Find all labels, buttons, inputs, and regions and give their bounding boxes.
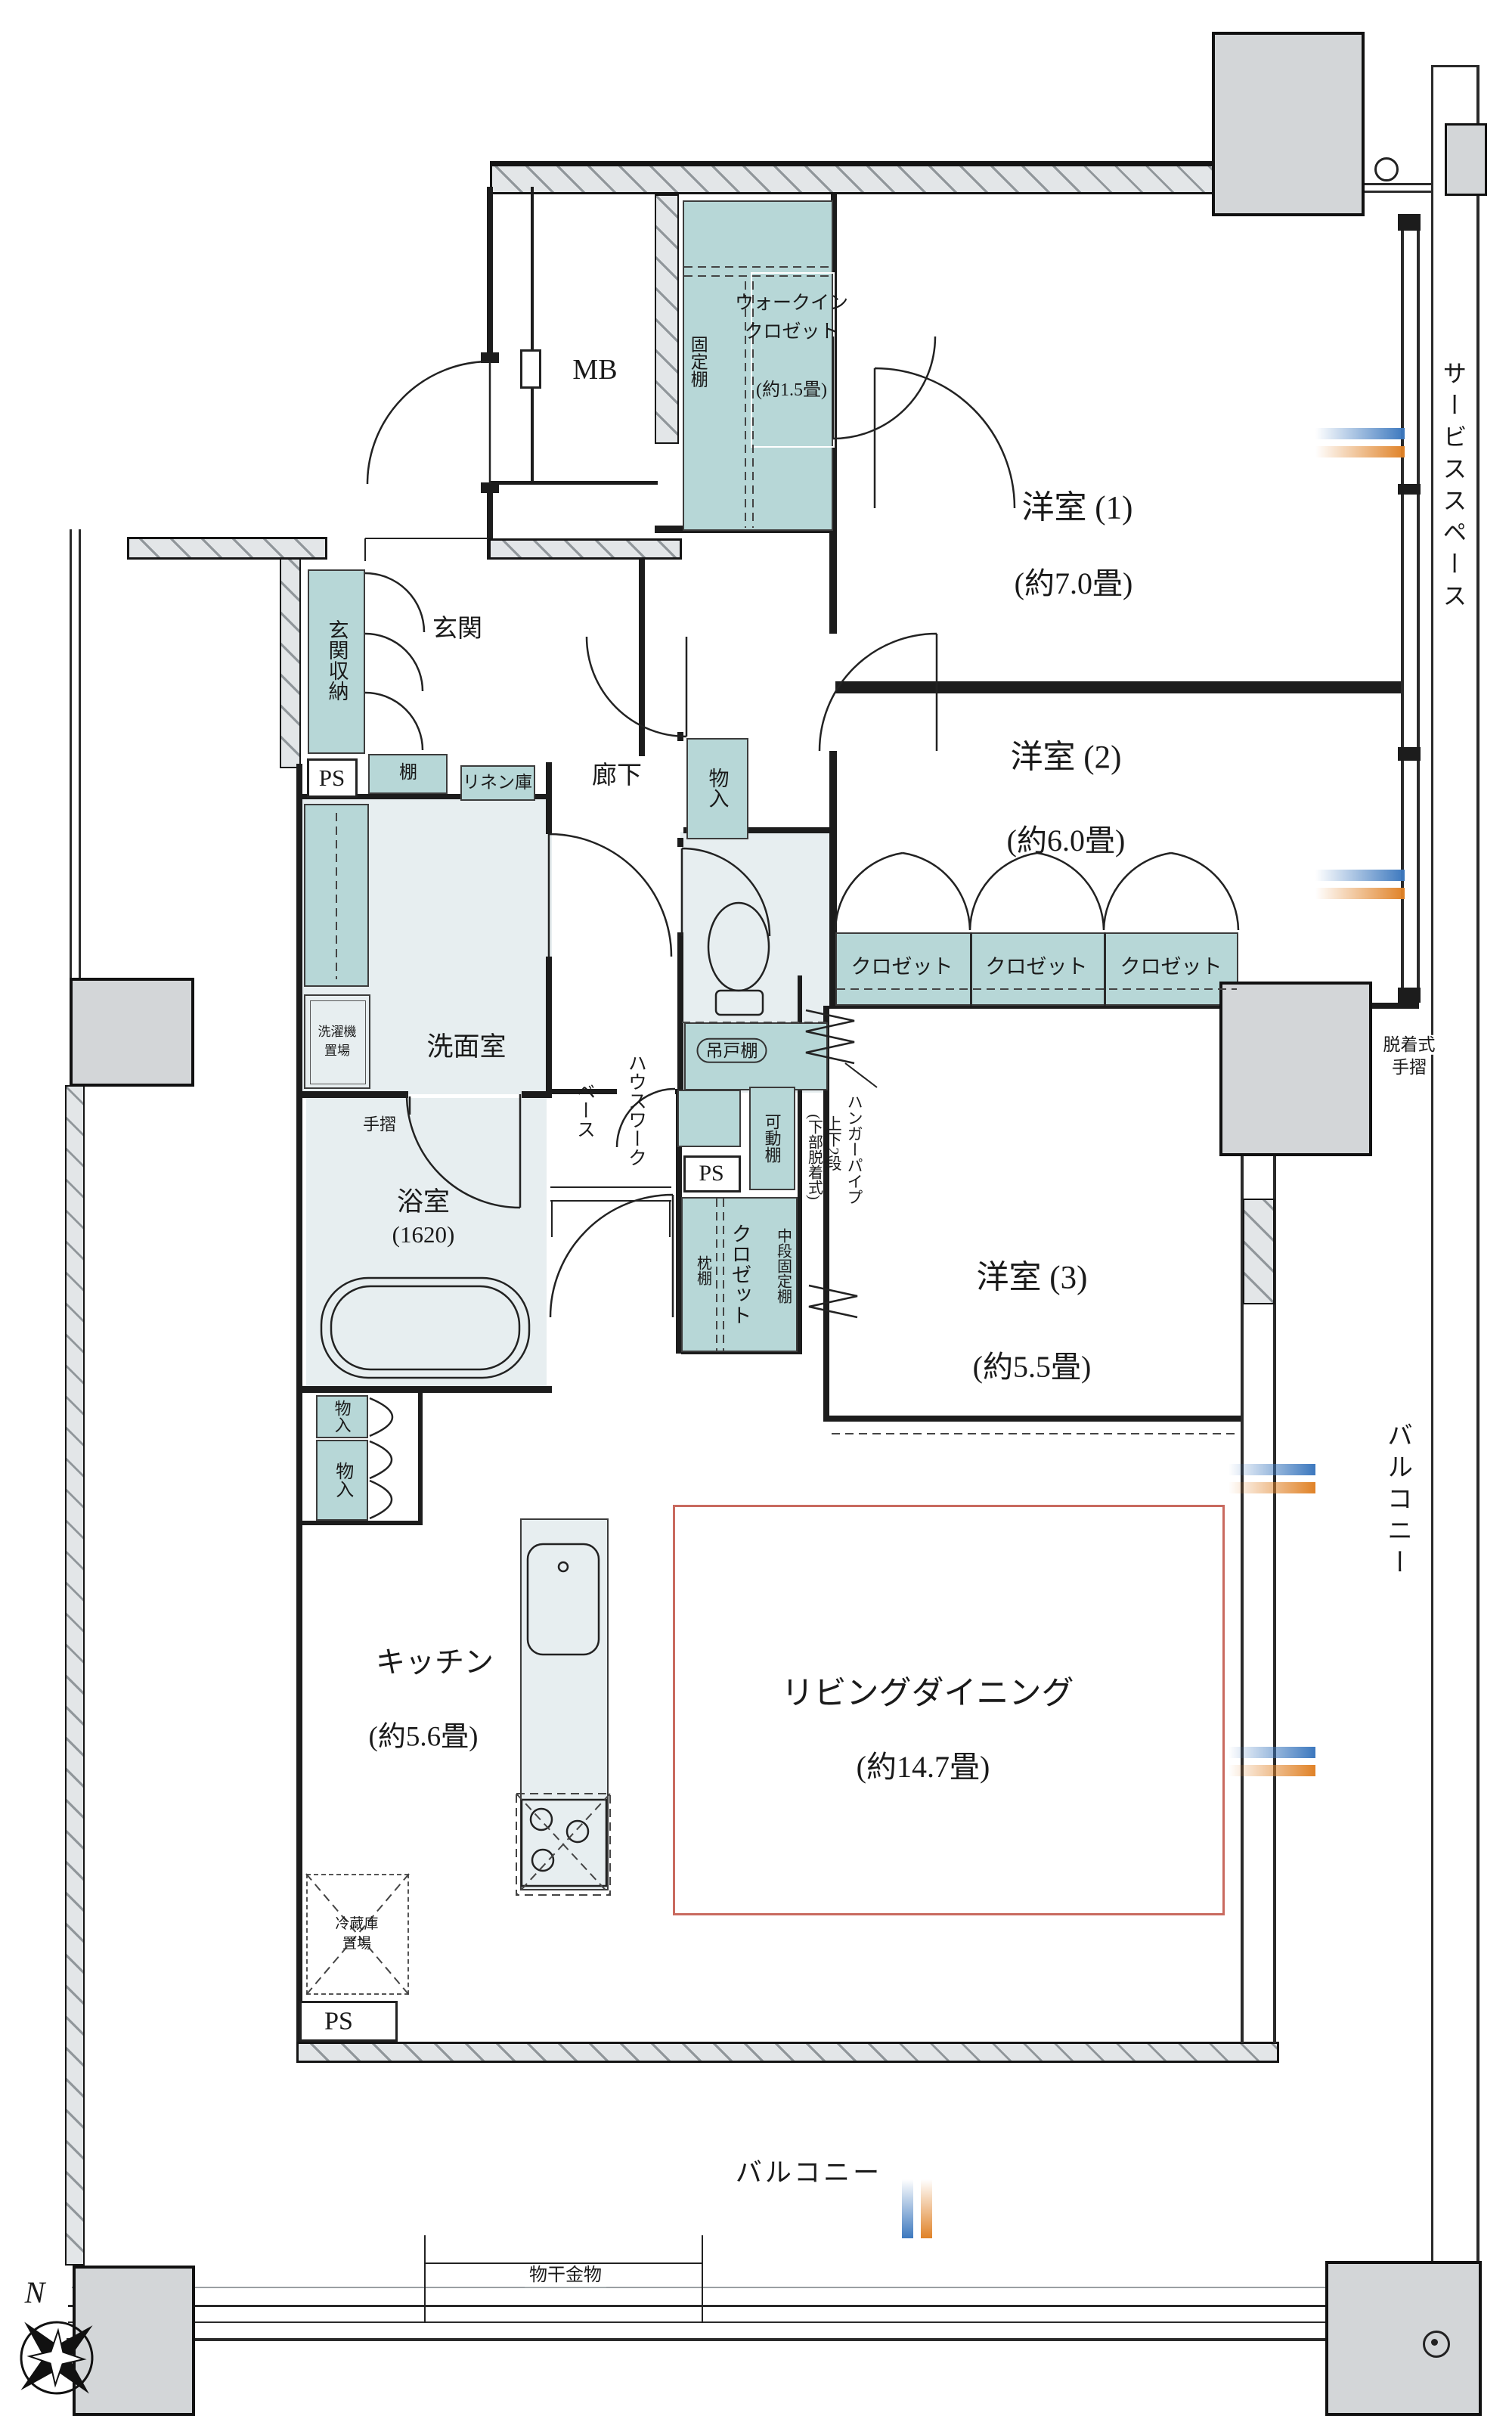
left-site-wall xyxy=(65,1085,85,2266)
desk-lines xyxy=(550,1187,671,1237)
entry-door-cap-2 xyxy=(481,482,499,493)
west-outer-wall xyxy=(296,764,302,2046)
entry-wall-upper xyxy=(487,187,493,361)
window-mark-orange-5 xyxy=(921,2179,932,2238)
north-wall xyxy=(490,161,1216,194)
fridge-space-box xyxy=(306,1874,409,1995)
tana-label: 棚 xyxy=(399,763,417,784)
ps-mid-label: PS xyxy=(699,1161,723,1187)
hall-monoiri-door-arc xyxy=(587,637,686,737)
window-mark-orange-4 xyxy=(1228,1765,1315,1776)
entry-north-wall-a xyxy=(127,537,327,560)
genkan-shuno-door-arcs xyxy=(365,573,424,750)
service-rail-cap xyxy=(1431,65,1479,67)
hanger-pipe-zigzag-2 xyxy=(809,1286,857,1317)
pillar-top-right xyxy=(1212,32,1365,216)
window-mark-blue-1 xyxy=(1315,428,1405,439)
hall-monoiri-label: 物入 xyxy=(705,768,728,808)
rouka-label: 廊下 xyxy=(592,762,642,791)
vent-circle-top xyxy=(1374,157,1399,181)
closet-bifold-arcs xyxy=(835,853,1238,930)
west1-size: (約7.0畳) xyxy=(1015,566,1133,601)
approach-line-1 xyxy=(70,529,72,979)
nook-teal-box xyxy=(677,1090,741,1147)
closet-label-2: クロゼット xyxy=(986,955,1088,978)
window-mark-blue-4 xyxy=(1228,1747,1315,1758)
bath-size-label: (1620) xyxy=(392,1221,455,1248)
west1-name: 洋室 (1) xyxy=(1022,489,1133,526)
east-window-wall-1 xyxy=(1401,214,1404,1003)
balcony-bottom-label: バルコニー xyxy=(736,2158,882,2188)
hanger-label-2: 上下2段 xyxy=(824,1115,842,1171)
east-wall-nib-2 xyxy=(1398,484,1421,495)
w3-south-wall xyxy=(829,1416,1241,1422)
monoiri-label-1: 物入 xyxy=(332,1400,351,1433)
genkan-hall-wall xyxy=(639,560,645,756)
bath-label: 浴室 xyxy=(397,1187,450,1217)
ld-label: リビングダイニング xyxy=(782,1675,1074,1712)
east-wall-nib-1 xyxy=(1398,214,1421,231)
entry-north-wall-b xyxy=(488,538,682,560)
floor-plan: MB 固定棚 ウォークイン クロゼット (約1.5畳) 洋室 (1) (約7.0… xyxy=(0,0,1512,2416)
closet-label-1: クロゼット xyxy=(851,955,953,978)
balcony-east-wall-2 xyxy=(1273,1006,1276,2043)
monoiri-door-bulges xyxy=(370,1398,392,1518)
kitchen-counter xyxy=(520,1518,609,1890)
east-wall-nib-3 xyxy=(1398,747,1421,761)
housework-label-2: ベース xyxy=(573,1082,595,1139)
west2-name: 洋室 (2) xyxy=(1011,739,1122,776)
balcony-east-wall-1 xyxy=(1241,1006,1244,2043)
toilet-west-wall xyxy=(677,932,683,1094)
toilet-west-wall-nib1 xyxy=(677,732,683,741)
dacchaku-label-2: 手摺 xyxy=(1392,1058,1427,1078)
front-door-arc xyxy=(367,361,490,484)
pillar-bottom-right xyxy=(1325,2261,1482,2416)
service-rail-box xyxy=(1445,123,1487,196)
wic-shelf-label: 固定棚 xyxy=(687,336,707,388)
washroom-label: 洗面室 xyxy=(426,1032,506,1062)
closet-v-label: クロゼット xyxy=(727,1224,751,1326)
balcony-right-label: バルコニー xyxy=(1382,1422,1411,1580)
west-outer-wall-upper xyxy=(280,558,301,768)
toilet-west-wall-nib2 xyxy=(677,838,683,847)
hall-west-wall-a xyxy=(546,762,552,834)
linen-label: リネン庫 xyxy=(463,773,532,792)
monoiri-south-wall xyxy=(301,1521,423,1525)
balcony-rail-line-2 xyxy=(68,2305,1478,2307)
balcony-rail-line-3 xyxy=(68,2321,1478,2323)
housework-label-1: ハウスワーク xyxy=(624,1053,646,1167)
laundry-label-1: 洗濯機 xyxy=(318,1025,357,1040)
washroom-door-arc xyxy=(549,834,671,957)
kitchen-size-label: (約5.6畳) xyxy=(369,1722,479,1754)
ps-bottom-label: PS xyxy=(324,2006,353,2036)
fridge-label-1: 冷蔵庫 xyxy=(335,1916,378,1933)
balcony-east-wall-hatch xyxy=(1243,1199,1275,1304)
fridge-label-2: 置場 xyxy=(342,1936,371,1952)
hall-west-wall-b xyxy=(546,957,552,1094)
genkan-shuno-label: 玄関収納 xyxy=(324,619,348,701)
mb-wall-joint xyxy=(520,349,541,389)
mb-left-wall xyxy=(531,187,534,484)
laundry-label-2: 置場 xyxy=(324,1044,350,1059)
porch-step-line xyxy=(365,538,488,561)
ld-size-label: (約14.7畳) xyxy=(857,1750,990,1785)
pillar-right-mid xyxy=(1219,982,1372,1156)
approach-line-2 xyxy=(79,529,81,979)
laundry-box-inner xyxy=(310,1000,366,1084)
wic-size-label: (約1.5畳) xyxy=(756,380,827,402)
hanger-leader-line xyxy=(845,1063,877,1087)
service-rail-line-inner xyxy=(1431,67,1433,2341)
south-wall xyxy=(296,2042,1279,2063)
west2-size: (約6.0畳) xyxy=(1007,823,1126,858)
tsurido-label: 吊戸棚 xyxy=(697,1041,767,1061)
window-mark-orange-1 xyxy=(1315,446,1405,457)
east-wall-nib-4 xyxy=(1398,988,1421,1003)
kitchen-label: キッチン xyxy=(376,1647,494,1681)
kadou-label: 可動棚 xyxy=(762,1113,781,1163)
ps-entry-label: PS xyxy=(319,764,345,792)
chudan-label: 中段固定棚 xyxy=(774,1228,792,1304)
wic-door-arc xyxy=(833,337,935,439)
compass-north-label: N xyxy=(25,2275,45,2310)
monoiri-label-2: 物入 xyxy=(331,1462,352,1498)
monohoshi-label: 物干金物 xyxy=(525,2266,606,2287)
service-rail-line-outer xyxy=(1476,67,1479,2341)
closet-row-div-2 xyxy=(1104,932,1106,1006)
wic-label-1: ウォークイン xyxy=(735,293,848,315)
service-space-label: サービススペース xyxy=(1439,361,1467,615)
genkan-label: 玄関 xyxy=(432,616,482,644)
window-mark-blue-2 xyxy=(1315,870,1405,881)
balcony-rail-line-4 xyxy=(67,2338,1479,2341)
dacchaku-label-1: 脱着式 xyxy=(1383,1035,1436,1055)
tie-line-2 xyxy=(1365,191,1431,193)
kitchen-door-arc xyxy=(550,1195,673,1317)
mb-bottom-edge xyxy=(490,481,658,485)
hanger-label-1: ハンガーパイプ xyxy=(845,1094,863,1205)
pillar-left-mid xyxy=(70,978,194,1087)
wic-label-2: クロゼット xyxy=(744,322,838,344)
west3-name: 洋室 (3) xyxy=(977,1259,1088,1296)
balcony-rail-line-1 xyxy=(72,2287,1478,2288)
mb-wic-wall xyxy=(655,194,679,444)
tie-line-1 xyxy=(1365,183,1431,185)
window-mark-blue-3 xyxy=(1228,1464,1315,1475)
washroom-cabinet xyxy=(304,804,369,987)
west1-door-arc xyxy=(875,368,1015,508)
drain-dot-bottom xyxy=(1431,2339,1438,2346)
w1-w2-wall xyxy=(835,681,1402,693)
west3-size: (約5.5畳) xyxy=(973,1350,1092,1385)
bath-south-wall xyxy=(301,1386,552,1393)
makura-label: 枕棚 xyxy=(694,1255,711,1286)
closet-label-3: クロゼット xyxy=(1120,955,1222,978)
window-mark-blue-5 xyxy=(902,2179,913,2238)
entry-door-cap-1 xyxy=(481,352,499,363)
bath-north-wall-b xyxy=(522,1091,552,1098)
closet-row-div-1 xyxy=(970,932,972,1006)
east-window-wall-2 xyxy=(1417,214,1420,1003)
bath-tesuri-label: 手摺 xyxy=(363,1115,396,1134)
window-mark-orange-2 xyxy=(1315,888,1405,899)
mb-label: MB xyxy=(572,354,617,387)
hanger-label-3: (下部脱着式) xyxy=(805,1114,823,1199)
pillar-bottom-left xyxy=(73,2266,195,2416)
window-mark-orange-3 xyxy=(1228,1482,1315,1493)
bath-north-wall-a xyxy=(301,1091,408,1098)
monoiri-east-wall xyxy=(418,1392,423,1525)
